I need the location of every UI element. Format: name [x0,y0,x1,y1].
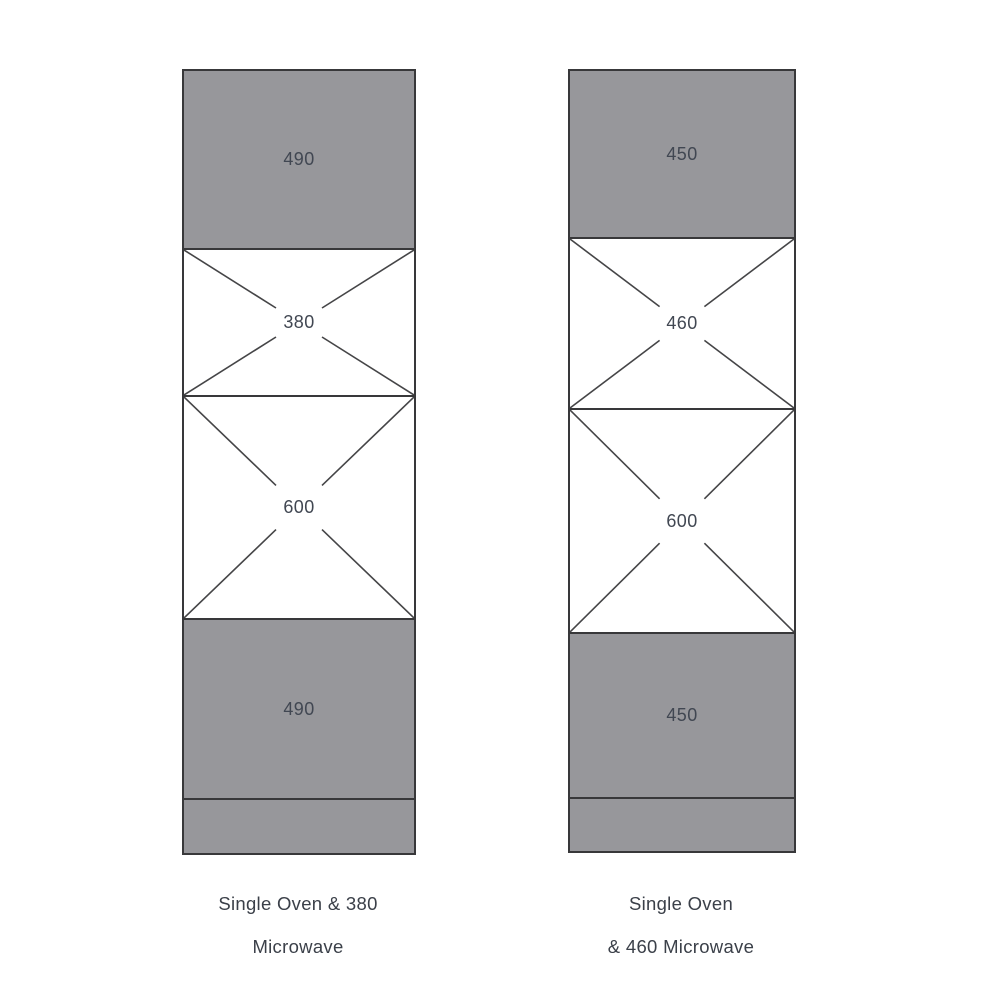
dimension-label: 600 [666,511,697,532]
caption-single-oven-460-microwave: Single Oven & 460 Microwave [521,882,841,968]
dimension-label: 450 [666,705,697,726]
dimension-label: 460 [666,313,697,334]
top-oven-housing-panel: 490 [184,71,414,250]
microwave-aperture: 460 [570,239,794,410]
diagram-canvas: 490 380 600 490 450 [0,0,1000,1000]
dimension-label: 450 [666,144,697,165]
caption-line: Single Oven & 380 [138,882,458,925]
caption-single-oven-380-microwave: Single Oven & 380 Microwave [138,882,458,968]
caption-line: & 460 Microwave [521,925,841,968]
plinth-panel [184,800,414,853]
caption-line: Single Oven [521,882,841,925]
oven-aperture: 600 [570,410,794,634]
dimension-label: 490 [283,699,314,720]
bottom-housing-panel: 450 [570,634,794,799]
oven-aperture: 600 [184,397,414,620]
microwave-aperture: 380 [184,250,414,397]
caption-line: Microwave [138,925,458,968]
plinth-panel [570,799,794,851]
cabinet-single-oven-460-microwave: 450 460 600 450 [568,69,796,853]
bottom-housing-panel: 490 [184,620,414,800]
cabinet-single-oven-380-microwave: 490 380 600 490 [182,69,416,855]
top-oven-housing-panel: 450 [570,71,794,239]
dimension-label: 600 [283,497,314,518]
dimension-label: 490 [283,149,314,170]
dimension-label: 380 [283,312,314,333]
